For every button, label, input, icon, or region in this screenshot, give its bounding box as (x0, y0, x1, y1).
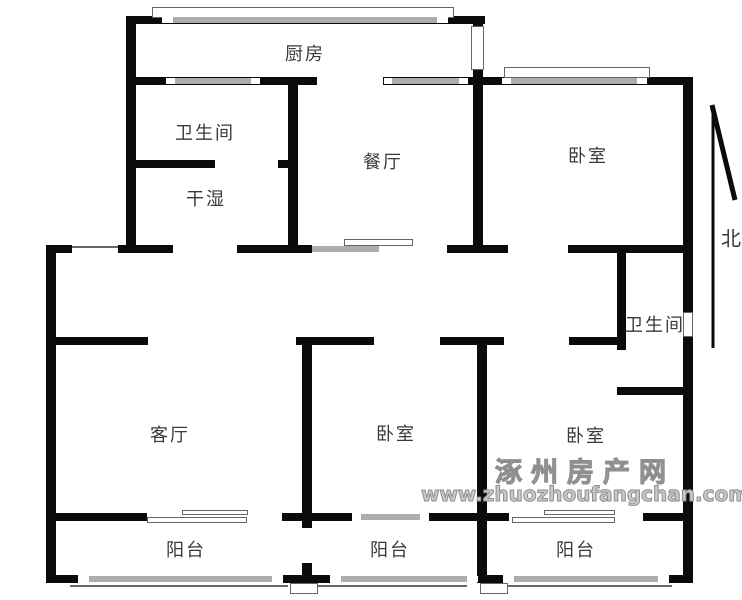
window-endcap (420, 514, 429, 520)
entry-door-line (72, 246, 118, 248)
wall-bath-drywet-divider (126, 160, 215, 168)
balcony-sill-m (318, 585, 467, 587)
wall-hall-a (50, 337, 148, 345)
balcony-divider-base-1 (283, 575, 330, 583)
wall-bedroom-s-south-a (282, 513, 352, 521)
window-endcap (330, 576, 341, 582)
north-label: 北 (721, 223, 741, 252)
room-label-balcony-w: 阳台 (166, 536, 206, 562)
window-endcap (162, 17, 173, 23)
room-label-balcony-m: 阳台 (370, 536, 410, 562)
balcony-sill-e (502, 585, 672, 587)
window-endcap (437, 17, 448, 23)
room-label-bedroom-se: 卧室 (566, 422, 606, 448)
window-bedroom-ne (510, 78, 638, 84)
window-endcap (502, 78, 511, 84)
window-endcap (658, 576, 669, 582)
room-label-dining: 餐厅 (363, 148, 403, 174)
wall-bedroom-se-south (643, 513, 692, 521)
wall-west (46, 245, 56, 583)
slider-bedroom-se-lower (512, 517, 615, 523)
window-endcap (467, 576, 478, 582)
balcony-sill-w (70, 585, 288, 587)
wall-mid-b (118, 245, 173, 253)
balcony-window-m (341, 576, 467, 582)
window-bath-top (174, 78, 252, 84)
wall-bedroom-bedroom-divider (477, 343, 487, 583)
balcony-wall-corner-e (669, 575, 692, 583)
window-endcap (637, 78, 647, 84)
slider-living-lower (147, 517, 247, 523)
room-label-bathroom-mid: 卫生间 (625, 311, 685, 337)
window-outline-bedroom-ne (504, 67, 650, 78)
wall-bedroom-s-south-b (429, 513, 509, 521)
balcony-divider-notch-2 (480, 583, 508, 594)
slider-outline-dining (344, 239, 413, 246)
wall-bath-drywet-stub (278, 160, 288, 168)
window-kitchen-top (172, 17, 438, 23)
room-label-bathroom-top: 卫生间 (175, 119, 235, 145)
window-endcap (503, 576, 514, 582)
room-label-living: 客厅 (150, 421, 190, 447)
room-label-bedroom-ne: 卧室 (568, 142, 608, 168)
window-bedroom-s (361, 514, 420, 520)
window-endcap (352, 514, 361, 520)
wall-mid-c (237, 245, 312, 253)
wall-east-upper (683, 77, 693, 312)
window-endcap (78, 576, 89, 582)
wall-mid-e (568, 245, 692, 253)
watermark-site-url: www.zhuozhoufangchan.com (421, 482, 742, 506)
window-dining-south (312, 246, 379, 252)
floor-plan: 厨房 卫生间 干湿 餐厅 卧室 卫生间 客厅 卧室 卧室 阳台 阳台 阳台 北 … (0, 0, 742, 600)
balcony-window-w (89, 576, 272, 582)
room-label-balcony-e: 阳台 (556, 536, 596, 562)
window-endcap (459, 78, 468, 84)
wall-bath-dining-divider (288, 77, 298, 253)
wall-mid-d (447, 245, 508, 253)
balcony-window-e (514, 576, 658, 582)
window-endcap (384, 78, 392, 84)
room-label-dry-wet: 干湿 (186, 185, 226, 211)
balcony-divider-notch-1 (290, 583, 318, 594)
window-dining-top (391, 78, 460, 84)
room-label-kitchen: 厨房 (285, 40, 325, 66)
balcony-divider-base-2 (478, 575, 503, 583)
balcony-wall-corner-w (46, 575, 78, 583)
room-label-bedroom-s: 卧室 (376, 420, 416, 446)
wall-hall-c (440, 337, 504, 345)
wall-living-south (46, 513, 147, 521)
slider-living-upper (182, 510, 248, 515)
window-endcap (251, 78, 260, 84)
wall-living-bedroom-divider (302, 343, 312, 528)
window-endcap (166, 78, 175, 84)
slider-bedroom-se-upper (544, 510, 615, 515)
wall-bath-mid-bottom (617, 387, 690, 395)
window-endcap (272, 576, 283, 582)
window-kitchen-right (471, 26, 484, 70)
wall-east-lower (683, 337, 693, 583)
wall-kitchen-left (126, 16, 136, 253)
